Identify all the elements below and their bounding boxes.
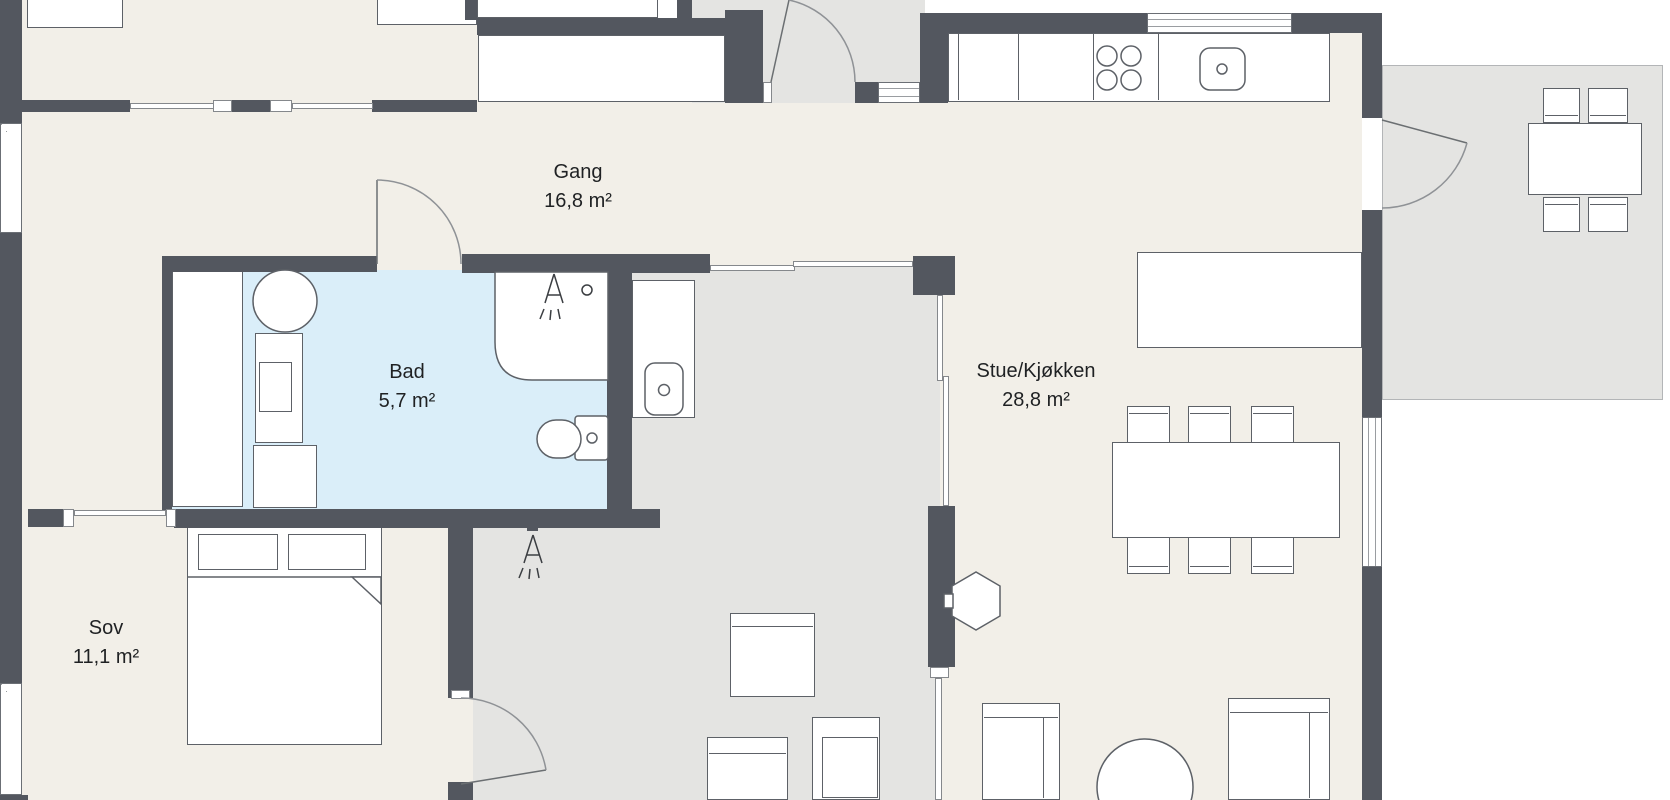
stove-burners-icon <box>1097 46 1141 90</box>
bed-fold <box>352 577 381 604</box>
coffee-table <box>1097 739 1193 800</box>
shower-head-icon <box>519 535 542 579</box>
kitchen-sink-icon <box>1200 48 1245 90</box>
toilet-icon <box>537 416 608 460</box>
room-name: Bad <box>379 358 436 387</box>
room-label-sov: Sov 11,1 m² <box>73 614 139 672</box>
fixtures-overlay <box>0 0 1670 800</box>
washbasin <box>253 270 317 332</box>
side-table <box>952 572 1000 630</box>
shower-mount <box>527 524 538 531</box>
room-name: Sov <box>73 614 139 643</box>
room-area: 5,7 m² <box>379 387 436 416</box>
shower-drain-icon <box>582 285 592 295</box>
floor-plan: Gang 16,8 m² Bad 5,7 m² Stue/Kjøkken 28,… <box>0 0 1670 800</box>
room-area: 28,8 m² <box>977 386 1096 415</box>
entry-door <box>771 0 855 82</box>
glass-room-door <box>461 698 546 784</box>
room-label-bad: Bad 5,7 m² <box>379 358 436 416</box>
room-area: 11,1 m² <box>73 643 139 672</box>
terrace-door <box>1382 120 1467 208</box>
side-table-mount <box>944 594 953 608</box>
room-area: 16,8 m² <box>544 187 612 216</box>
room-name: Stue/Kjøkken <box>977 357 1096 386</box>
bathroom-door <box>377 180 461 264</box>
room-name: Gang <box>544 158 612 187</box>
utility-sink-icon <box>645 363 683 415</box>
room-label-stue-kjokken: Stue/Kjøkken 28,8 m² <box>977 357 1096 415</box>
room-label-gang: Gang 16,8 m² <box>544 158 612 216</box>
